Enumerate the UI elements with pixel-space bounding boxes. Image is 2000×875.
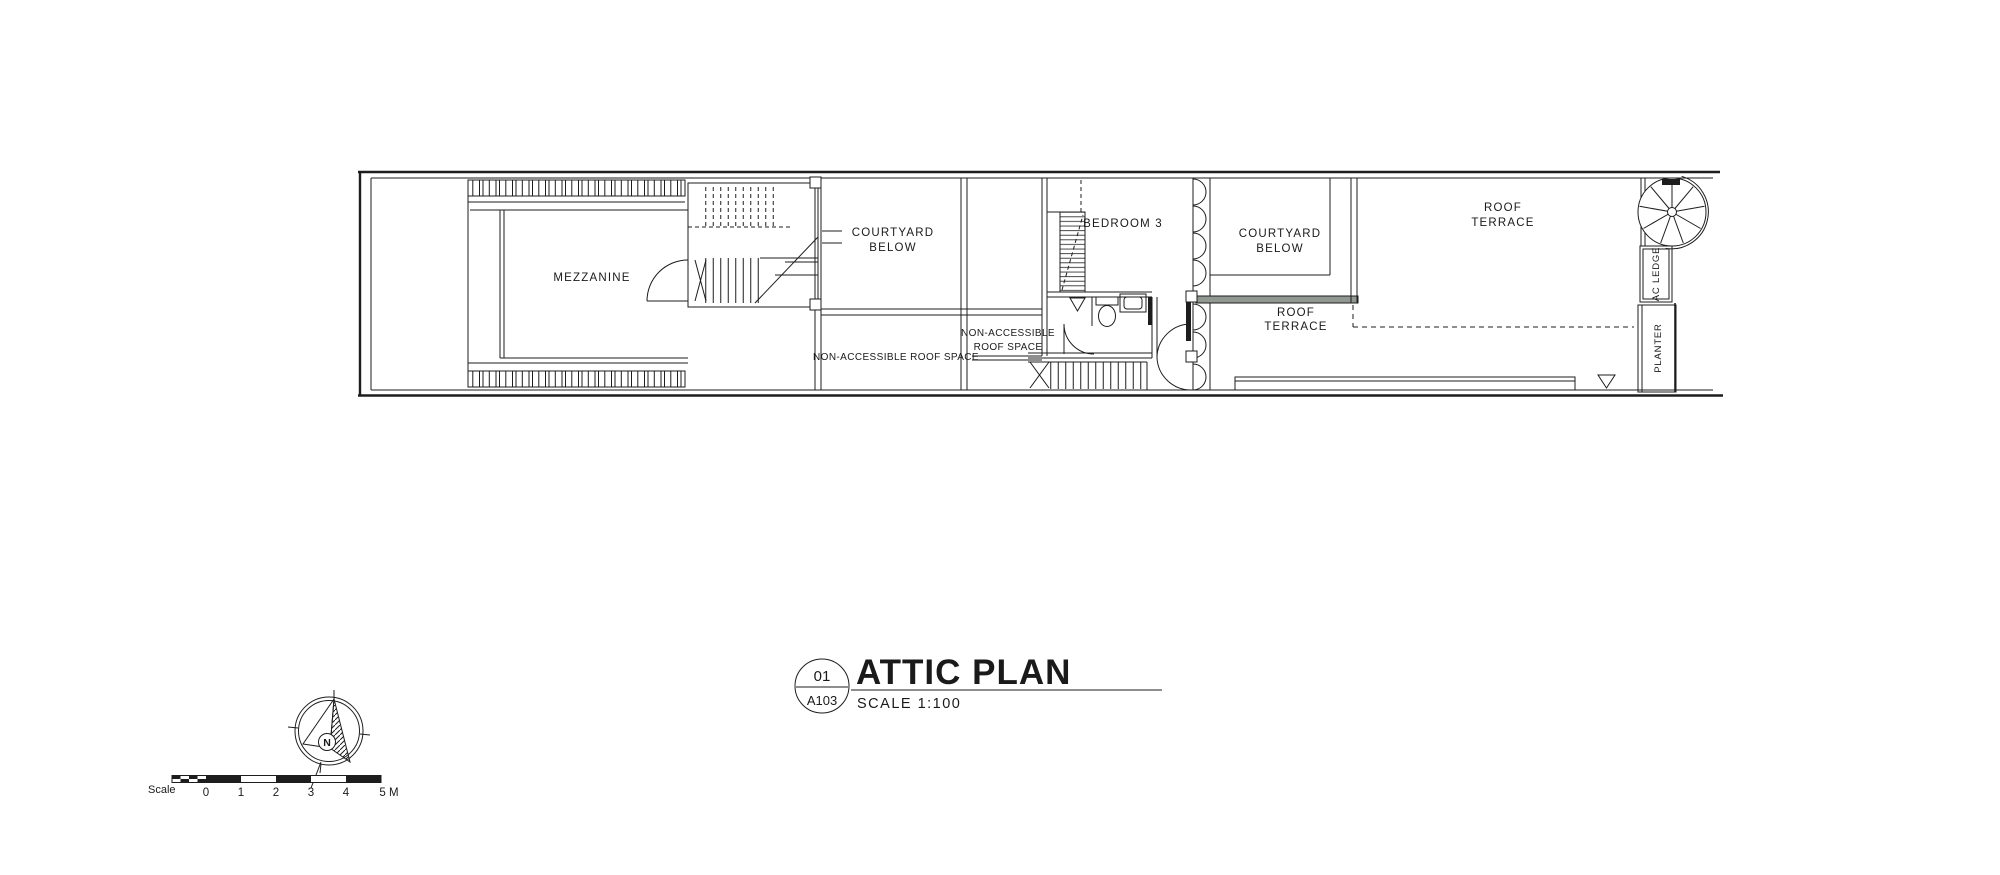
north-letter: N (323, 737, 331, 749)
courtyard2-label-line1: COURTYARD (1239, 228, 1322, 240)
terrace-bench (1235, 377, 1575, 390)
mezzanine-bottom-louver (468, 371, 685, 387)
spiral-stair (1638, 176, 1708, 249)
roof-space2-label-line1: NON-ACCESSIBLE (961, 328, 1055, 339)
stair-upper-treads (702, 185, 778, 226)
stair-lower-treads (702, 258, 760, 303)
bedroom3-block: BEDROOM 3 (1028, 178, 1191, 390)
louver-window-wall (1186, 178, 1358, 390)
scale-tick-1: 1 (238, 787, 244, 799)
column-marker (1186, 291, 1197, 302)
needle-east-half (330, 699, 350, 762)
scale-tick-2: 2 (273, 787, 279, 799)
scale-bar-label: Scale (148, 784, 176, 796)
terrace-main-label-line2: TERRACE (1471, 217, 1534, 229)
detail-number: 01 (814, 668, 831, 685)
column-marker (810, 299, 821, 310)
terrace-mid-label-line2: TERRACE (1264, 321, 1327, 333)
attic-plan-drawing: MEZZANINE COURTYARD BELOW NON-ACCE (0, 0, 2000, 875)
drawing-scale: SCALE 1:100 (857, 696, 961, 712)
toilet-bowl (1099, 306, 1116, 327)
sink-basin (1124, 297, 1142, 309)
title-block: 01 A103 ATTIC PLAN SCALE 1:100 (795, 653, 1162, 713)
courtyard-1: COURTYARD BELOW NON-ACCESSIBLE ROOF SPAC… (810, 177, 1042, 390)
mezzanine-room: MEZZANINE (468, 180, 688, 387)
bathroom-door-arc (1064, 324, 1094, 354)
ac-ledge: AC LEDGE (1640, 246, 1672, 302)
roof-space2-label-line2: ROOF SPACE (974, 342, 1043, 353)
courtyard2-label-line2: BELOW (1256, 243, 1304, 255)
courtyard1-label-line1: COURTYARD (852, 227, 935, 239)
scale-bar: Scale 0 1 2 3 4 5 M (148, 776, 399, 800)
drawing-title: ATTIC PLAN (856, 653, 1071, 692)
toilet-tank (1096, 297, 1118, 305)
level-marker-triangle (1598, 375, 1615, 388)
main-stair (688, 183, 842, 307)
planter: PLANTER (1638, 303, 1676, 392)
mezzanine-door-arc (647, 260, 688, 301)
ac-ledge-label: AC LEDGE (1651, 247, 1662, 301)
mezzanine-top-louver (468, 180, 685, 196)
mezzanine-label: MEZZANINE (553, 272, 630, 284)
scale-tick-3: 3 (308, 787, 314, 799)
column-marker (810, 177, 821, 188)
bathroom (1028, 292, 1191, 358)
shower-head-symbol (1070, 298, 1085, 311)
column-marker (1186, 351, 1197, 362)
bedroom3-label: BEDROOM 3 (1083, 218, 1163, 230)
terrace-mid-label-line1: ROOF (1277, 307, 1315, 319)
north-arrow: N (288, 690, 370, 788)
terrace-edge-band (1196, 296, 1358, 303)
drawing-sheet: MEZZANINE COURTYARD BELOW NON-ACCE (0, 0, 2000, 875)
scale-tick-5: 5 M (379, 787, 398, 799)
loft-ladder (1060, 212, 1085, 292)
roof-space-long-label: NON-ACCESSIBLE ROOF SPACE (813, 352, 979, 363)
scale-tick-4: 4 (343, 787, 350, 799)
courtyard-2: COURTYARD BELOW (1210, 178, 1357, 303)
lower-stair (1028, 362, 1147, 390)
courtyard1-label-line2: BELOW (869, 242, 917, 254)
planter-label: PLANTER (1653, 323, 1664, 372)
terrace-main-label-line1: ROOF (1484, 202, 1522, 214)
sheet-number: A103 (807, 693, 837, 708)
scale-tick-0: 0 (203, 787, 209, 799)
